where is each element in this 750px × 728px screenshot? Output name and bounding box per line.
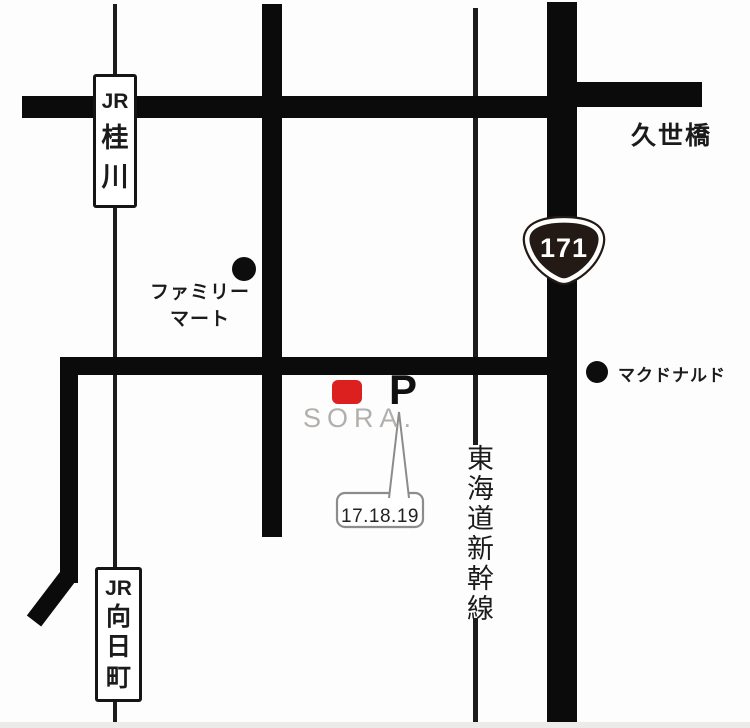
familymart-label: ファミリー マート [143,279,257,333]
sora-location-marker [332,380,362,404]
shinkansen-line-upper [473,8,478,445]
station-mukomachi-jr: JR [105,578,132,599]
station-mukomachi-kanji-3: 町 [106,666,131,691]
station-katsuragawa-jr: JR [102,91,129,112]
road-left-vertical [60,357,78,583]
station-box-mukomachi: JR 向 日 町 [95,567,142,702]
road-left-diagonal [34,575,69,621]
parking-note: 17.18.19 [341,506,419,527]
mcdonalds-dot-icon [586,361,608,383]
shinkansen-label: 東海道新幹線 [459,444,498,624]
bottom-strip [0,722,750,728]
mcdonalds-label: マクドナルド [618,361,726,386]
station-box-katsuragawa: JR 桂 川 [93,74,137,208]
station-katsuragawa-kanji-2: 川 [102,164,129,191]
familymart-dot-icon [232,257,256,281]
kuzebashi-label: 久世橋 [631,116,712,152]
familymart-label-line1: ファミリー [143,279,257,306]
familymart-label-line2: マート [143,306,257,333]
station-mukomachi-kanji-1: 向 [106,605,131,630]
road-middle-vertical [262,4,282,537]
parking-p-label: P [389,366,417,414]
station-katsuragawa-kanji-1: 桂 [102,125,129,152]
access-map: 171 17.18.19 JR 桂 川 JR 向 日 町 久世橋 ファミリー マ… [0,0,750,728]
station-mukomachi-kanji-2: 日 [106,635,131,660]
route-171-shield-icon: 171 [527,220,601,280]
road-middle-horizontal [60,357,577,375]
shinkansen-line-lower [473,618,478,723]
route-number: 171 [540,233,588,263]
